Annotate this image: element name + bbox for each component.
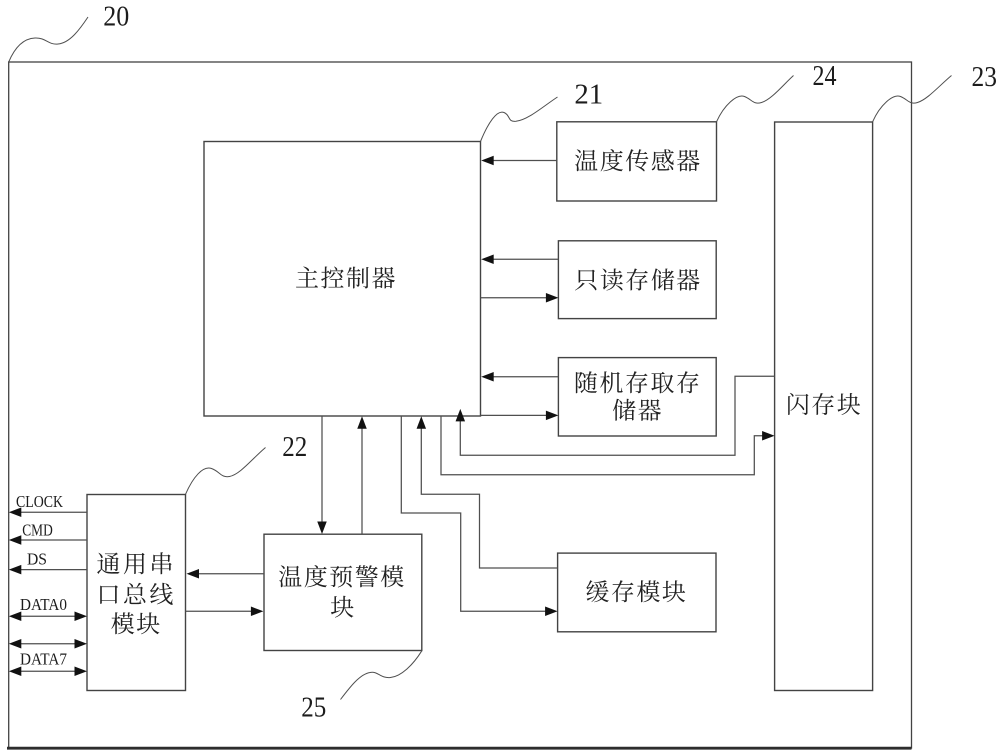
- svg-text:25: 25: [301, 692, 326, 724]
- svg-text:21: 21: [574, 78, 603, 110]
- svg-text:DATA0: DATA0: [20, 595, 67, 614]
- svg-text:CLOCK: CLOCK: [16, 492, 64, 511]
- svg-text:22: 22: [282, 431, 307, 463]
- svg-text:CMD: CMD: [22, 521, 53, 540]
- svg-text:20: 20: [103, 1, 129, 33]
- svg-text:23: 23: [971, 61, 997, 93]
- svg-text:24: 24: [813, 60, 837, 92]
- svg-text:DATA7: DATA7: [20, 650, 67, 669]
- svg-text:DS: DS: [27, 550, 47, 569]
